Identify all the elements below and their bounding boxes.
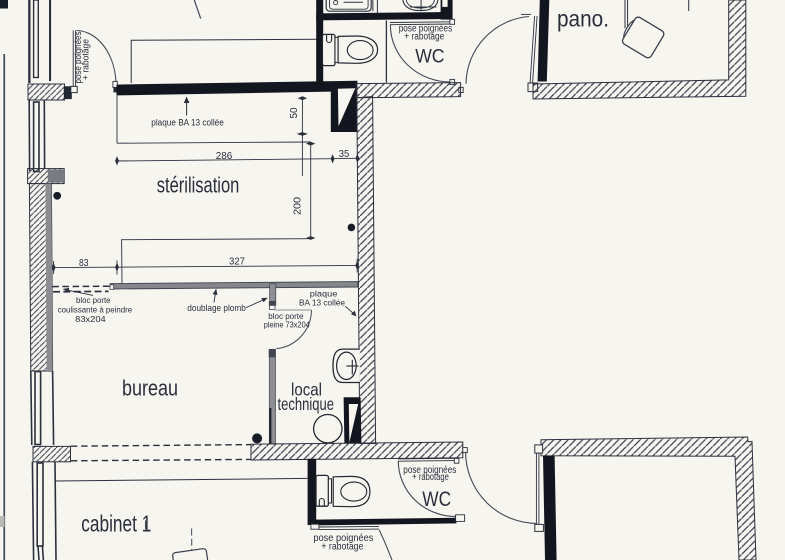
svg-text:cabinet 1: cabinet 1 bbox=[81, 510, 151, 536]
svg-text:BA 13 collée: BA 13 collée bbox=[299, 297, 345, 307]
svg-text:83: 83 bbox=[79, 258, 89, 269]
svg-text:doublage plomb: doublage plomb bbox=[187, 302, 246, 313]
svg-text:+ rabotage: + rabotage bbox=[81, 39, 91, 80]
svg-text:83x204: 83x204 bbox=[75, 314, 106, 324]
svg-text:35: 35 bbox=[339, 148, 350, 160]
svg-text:stérilisation: stérilisation bbox=[157, 172, 240, 197]
svg-text:+ rabotage: + rabotage bbox=[412, 472, 449, 483]
svg-text:WC: WC bbox=[415, 45, 444, 67]
svg-text:pleine 73x204: pleine 73x204 bbox=[264, 320, 310, 330]
svg-text:+ rabotage: + rabotage bbox=[321, 542, 363, 553]
svg-text:bureau: bureau bbox=[122, 376, 178, 401]
svg-text:+ rabotage: + rabotage bbox=[404, 31, 444, 42]
svg-text:327: 327 bbox=[229, 256, 245, 268]
svg-text:286: 286 bbox=[216, 150, 233, 162]
svg-text:pano.: pano. bbox=[557, 5, 609, 31]
svg-text:WC: WC bbox=[422, 487, 451, 511]
svg-text:technique: technique bbox=[278, 394, 335, 414]
svg-text:200: 200 bbox=[292, 197, 304, 215]
svg-text:plaque BA 13 collée: plaque BA 13 collée bbox=[151, 118, 224, 129]
svg-text:50: 50 bbox=[289, 107, 300, 118]
